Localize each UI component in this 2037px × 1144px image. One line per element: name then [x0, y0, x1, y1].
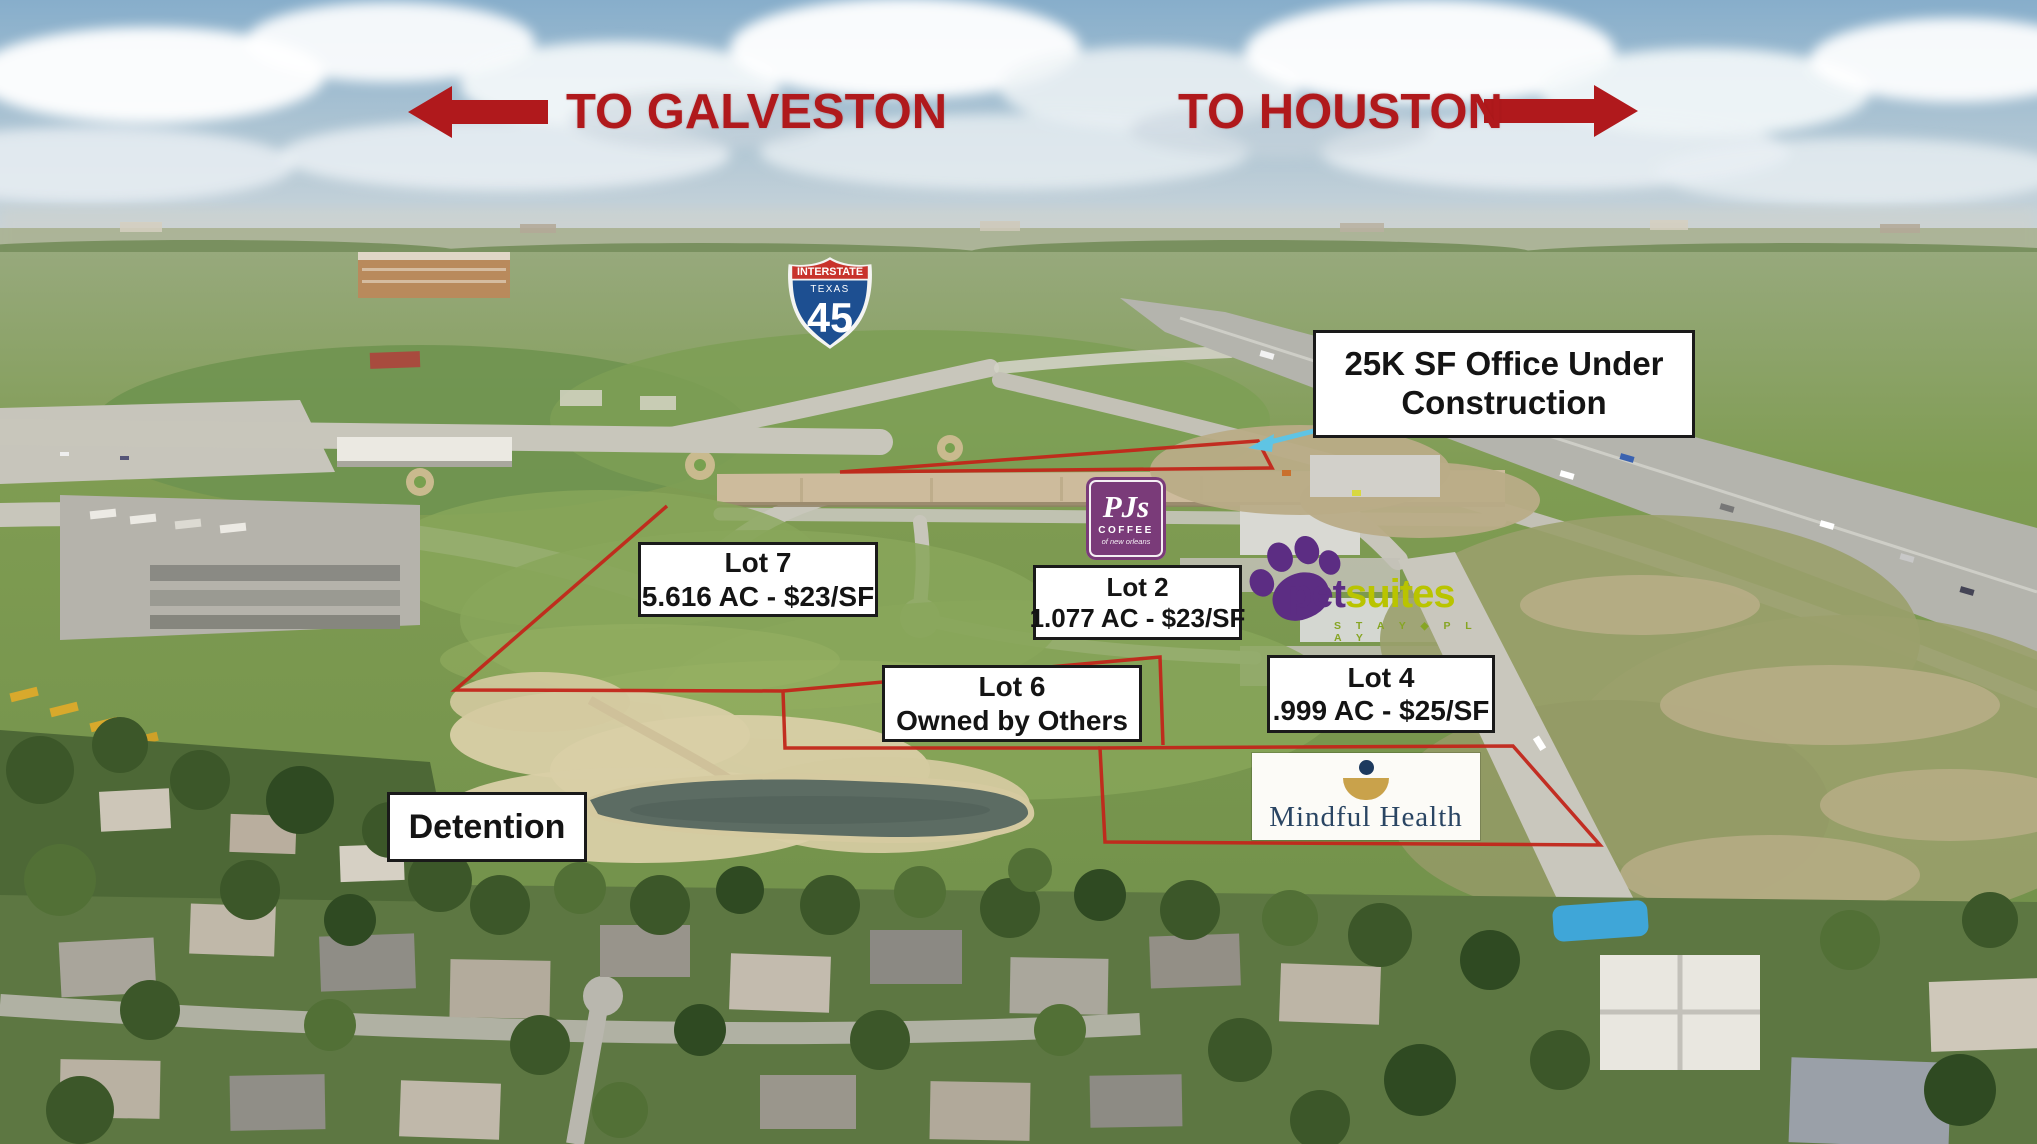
- detention-callout: Detention: [387, 792, 587, 862]
- pjs-coffee-word: COFFEE: [1098, 525, 1154, 536]
- lot2-callout: Lot 2 1.077 AC - $23/SF: [1033, 565, 1242, 640]
- mindful-health-dot-icon: [1359, 760, 1374, 775]
- petsuites-word1: pet: [1288, 572, 1345, 616]
- lot6-callout: Lot 6 Owned by Others: [882, 665, 1142, 742]
- lot4-callout: Lot 4 .999 AC - $25/SF: [1267, 655, 1495, 733]
- aerial-site-map: TO GALVESTON TO HOUSTON INTERSTATE TEXAS…: [0, 0, 2037, 1144]
- to-galveston-label: TO GALVESTON: [566, 84, 947, 140]
- pjs-coffee-name: PJs: [1103, 492, 1150, 522]
- lot7-title: Lot 7: [725, 546, 792, 579]
- red-roof-building: [370, 351, 421, 369]
- pjs-coffee-tagline: of new orleans: [1102, 537, 1151, 546]
- office-building-left: [337, 437, 512, 463]
- lot4-title: Lot 4: [1348, 661, 1415, 694]
- office-building-left-shadow: [337, 461, 512, 467]
- lot7-detail: 5.616 AC - $23/SF: [642, 580, 874, 613]
- petsuites-word2: suites: [1345, 572, 1455, 616]
- lot2-title: Lot 2: [1106, 572, 1168, 603]
- petsuites-logo: petsuites S T A Y ◆ P L A Y: [1248, 532, 1488, 640]
- office-construction-callout: 25K SF Office Under Construction: [1313, 330, 1695, 438]
- lot2-detail: 1.077 AC - $23/SF: [1030, 603, 1246, 634]
- mindful-health-name: Mindful Health: [1269, 801, 1463, 834]
- pond-shadow: [630, 796, 990, 824]
- interstate-45-shield: INTERSTATE TEXAS 45: [785, 253, 875, 353]
- lot7-callout: Lot 7 5.616 AC - $23/SF: [638, 542, 878, 617]
- aerial-photo-background: [0, 0, 2037, 1144]
- shield-state: TEXAS: [810, 284, 849, 295]
- office-construction-line2: Construction: [1401, 384, 1606, 423]
- lot4-detail: .999 AC - $25/SF: [1273, 694, 1490, 727]
- lot6-detail: Owned by Others: [896, 704, 1128, 737]
- to-houston-label: TO HOUSTON: [1178, 84, 1503, 140]
- detention-title: Detention: [409, 807, 566, 847]
- pjs-coffee-logo: PJs COFFEE of new orleans: [1086, 477, 1166, 560]
- hospital-building: [358, 252, 510, 298]
- mindful-health-arc-icon: [1343, 778, 1389, 800]
- mindful-health-logo: Mindful Health: [1252, 753, 1480, 840]
- petsuites-wordmark: petsuites: [1288, 572, 1455, 617]
- shield-header: INTERSTATE: [797, 266, 863, 278]
- office-construction-line1: 25K SF Office Under: [1344, 345, 1663, 384]
- lot6-title: Lot 6: [979, 670, 1046, 703]
- petsuites-tagline: S T A Y ◆ P L A Y: [1334, 620, 1488, 644]
- shield-number: 45: [807, 295, 853, 341]
